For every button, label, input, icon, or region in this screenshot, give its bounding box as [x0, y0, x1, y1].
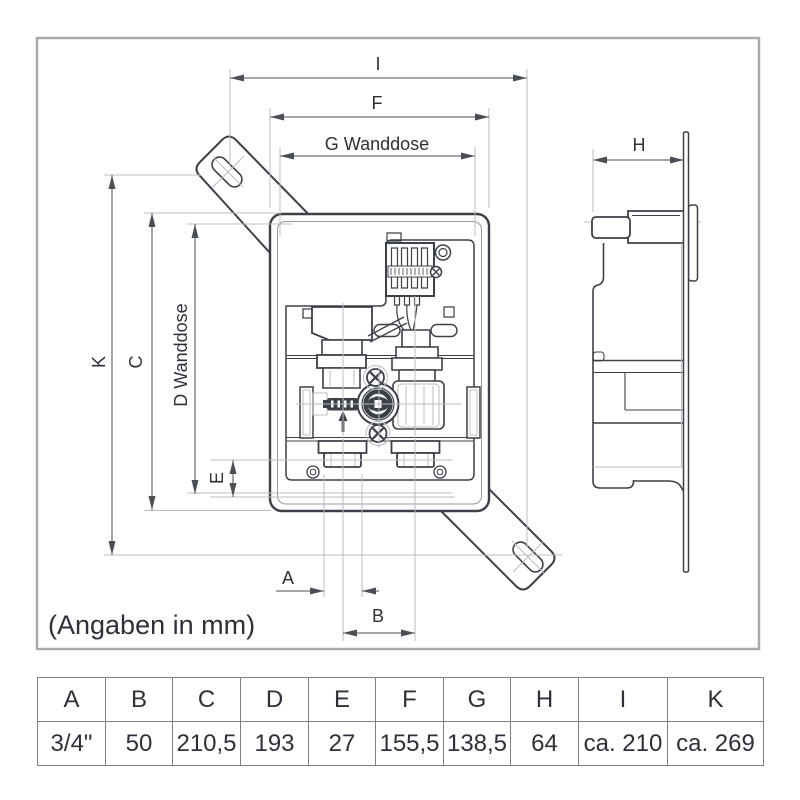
- front-view: [270, 214, 489, 511]
- table-value-cell: 64: [511, 722, 579, 766]
- dim-label-k: K: [90, 356, 108, 368]
- table-value-cell: 210,5: [173, 722, 241, 766]
- screw-top: [364, 366, 388, 390]
- table-header-cell: E: [309, 678, 376, 722]
- dim-label-f: F: [372, 94, 383, 112]
- table-header-cell: G: [444, 678, 511, 722]
- table-header-cell: D: [241, 678, 309, 722]
- table-value-cell: 27: [309, 722, 376, 766]
- technical-drawing-page: I F G Wanddose H K C D Wanddose E A B (A…: [0, 0, 800, 800]
- screw-bottom: [366, 422, 390, 446]
- side-view: [584, 132, 701, 572]
- table-header-cell: B: [106, 678, 173, 722]
- table-header-cell: F: [376, 678, 444, 722]
- table-value-row: 3/4" 50 210,5 193 27 155,5 138,5 64 ca. …: [38, 722, 764, 766]
- table-header-cell: K: [668, 678, 764, 722]
- dim-label-h: H: [633, 136, 646, 154]
- dim-label-e: E: [208, 472, 226, 484]
- table-header-row: A B C D E F G H I K: [38, 678, 764, 722]
- dimensions-table: A B C D E F G H I K 3/4" 50 210,5 193 27…: [37, 677, 764, 766]
- table-value-cell: 138,5: [444, 722, 511, 766]
- dim-label-a: A: [282, 569, 294, 587]
- table-header-cell: H: [511, 678, 579, 722]
- table-value-cell: 193: [241, 722, 309, 766]
- table-value-cell: 155,5: [376, 722, 444, 766]
- dim-label-g-wanddose: G Wanddose: [325, 135, 429, 153]
- dim-label-c: C: [127, 356, 145, 369]
- dim-label-d-wanddose: D Wanddose: [172, 303, 190, 406]
- table-value-cell: ca. 210: [579, 722, 668, 766]
- dim-label-i: I: [375, 55, 380, 73]
- table-value-cell: ca. 269: [668, 722, 764, 766]
- measurement-note: (Angaben in mm): [48, 610, 255, 641]
- table-value-cell: 3/4": [38, 722, 106, 766]
- table-header-cell: I: [579, 678, 668, 722]
- table-header-cell: C: [173, 678, 241, 722]
- dim-label-b: B: [372, 607, 384, 625]
- table-header-cell: A: [38, 678, 106, 722]
- table-value-cell: 50: [106, 722, 173, 766]
